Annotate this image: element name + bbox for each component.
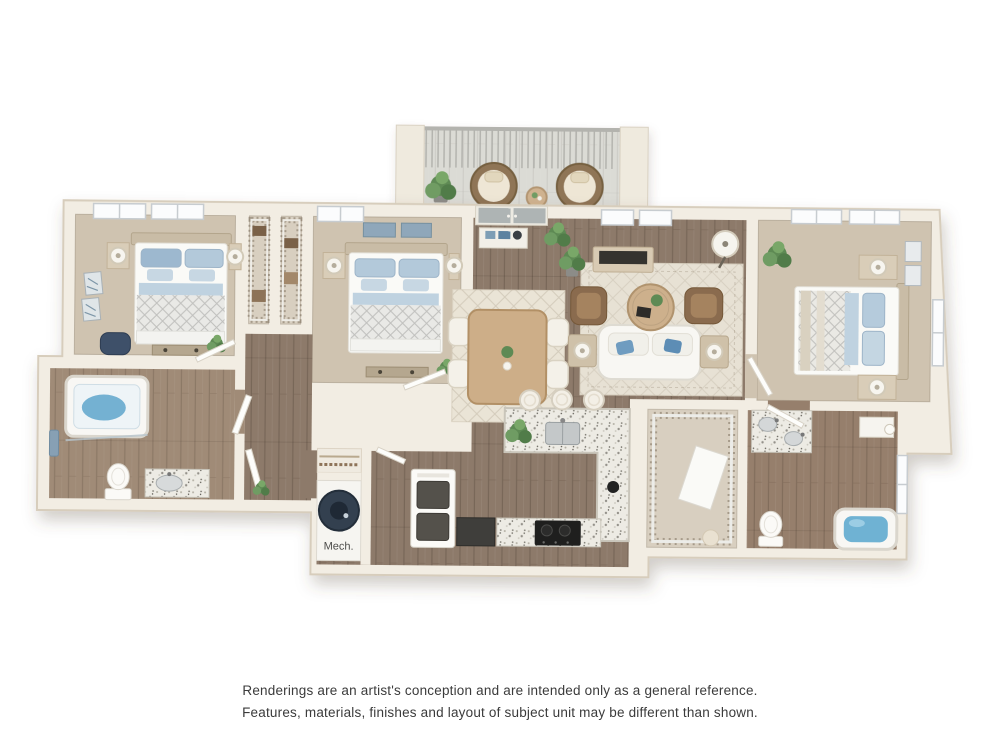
ottoman: [703, 530, 719, 546]
doorway-hall-kitchen: [305, 450, 317, 498]
balcony-chair-right: [557, 163, 603, 209]
bed: [344, 243, 447, 354]
armchair-right: [685, 288, 723, 324]
disclaimer-line-1: Renderings are an artist's conception an…: [0, 680, 1000, 702]
disclaimer: Renderings are an artist's conception an…: [0, 680, 1000, 724]
washer-dryer: [411, 469, 456, 547]
floorplan-rendering: Mech.: [0, 0, 1000, 750]
balcony-post-left: [396, 125, 425, 205]
dresser: [366, 367, 428, 378]
accent-chair: [100, 333, 130, 355]
toilet: [759, 511, 783, 546]
balcony-door-glass-right: [513, 208, 545, 223]
disclaimer-line-2: Features, materials, finishes and layout…: [0, 702, 1000, 724]
dining-area: [448, 290, 569, 423]
bar-stool: [584, 390, 604, 410]
dresser: [152, 345, 210, 356]
end-table-right: [700, 336, 728, 368]
bathtub: [835, 509, 897, 550]
water-heater: [319, 490, 359, 530]
floorplan-page: Mech.: [0, 0, 1000, 750]
range: [535, 520, 581, 545]
toilet: [105, 464, 131, 500]
table-centerpiece: [501, 346, 513, 358]
tub-water: [844, 516, 888, 542]
mech-label: Mech.: [324, 540, 354, 552]
bed: [130, 233, 231, 345]
sofa: [598, 325, 700, 380]
bar-stool: [520, 390, 540, 410]
vanity: [145, 469, 209, 498]
bed: [794, 283, 909, 380]
bathtub: [66, 376, 149, 437]
counter-appliance: [607, 481, 619, 493]
floorplan-group: Mech.: [36, 122, 954, 580]
dishwasher: [457, 518, 495, 546]
coffee-table: [628, 284, 674, 330]
bath-lamp: [885, 424, 895, 434]
balcony-door-glass-left: [478, 208, 510, 223]
bar-stool: [552, 389, 572, 409]
shelf-closet: [317, 448, 361, 472]
end-table-left: [568, 335, 596, 367]
armchair-left: [571, 287, 607, 325]
mechanical-closet: Mech.: [317, 448, 362, 560]
towel: [49, 430, 58, 456]
balcony: [396, 125, 649, 210]
laundry-wall: [360, 447, 371, 565]
tv: [599, 251, 647, 264]
balcony-post-right: [620, 127, 649, 207]
balcony-chair-left: [471, 163, 517, 209]
media-console: [593, 247, 653, 273]
